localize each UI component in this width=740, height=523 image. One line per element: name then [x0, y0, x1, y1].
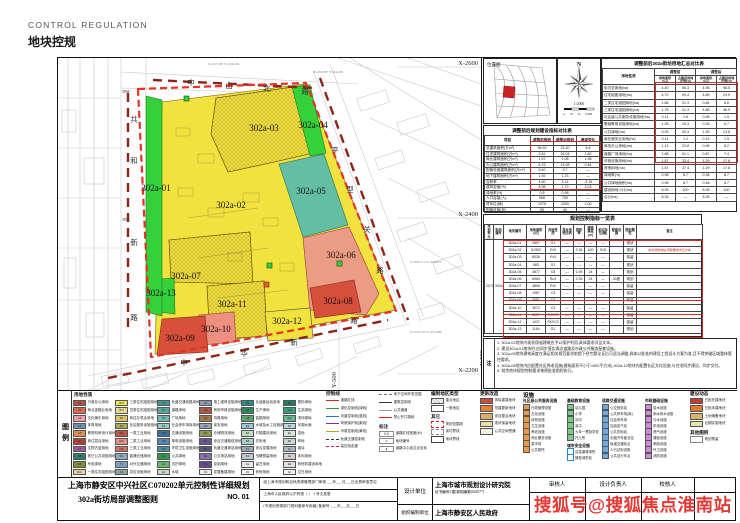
parcel-table-title: 规划控制指标一览表: [484, 215, 701, 224]
north-arrow-icon: N: [565, 62, 593, 98]
legend-facility-item: 公共厕所: [523, 447, 566, 453]
landuse-legend-item: S1道路用地: [157, 407, 199, 415]
landuse-legend-item: Wx仓储物流用地: [199, 430, 241, 438]
landuse-legend-item: Ef河湖水面: [283, 422, 325, 430]
landuse-legend-item: C8其它公共设施用地: [73, 453, 115, 461]
table-a: 项目调整前规划调整后规划增减变化总建筑面积(万m²)96.9221.406.6住…: [484, 135, 600, 213]
landuse-legend-item: D3保安用地: [199, 422, 241, 430]
svg-text:302a-04: 302a-04: [298, 120, 328, 130]
table-b-title: 调整前后302a街坊用地汇总对比表: [602, 59, 736, 68]
plan-map: 302a-01 302a-02 302a-03 302a-04 302a-05 …: [58, 58, 482, 391]
landuse-legend-item: X1控制用地: [199, 461, 241, 469]
landuse-legend-item: U1供应设施用地: [115, 468, 157, 476]
landuse-legend-item: F1综合发展用地: [241, 445, 283, 453]
landuse-legend-item: C6教育科研设计用地: [73, 430, 115, 438]
svg-text:Y-500: Y-500: [479, 350, 481, 366]
approval-line: (市规划资源部门规划备案专用章) 备案号: ___年___月___日: [260, 502, 397, 514]
scale-bar: 0 25 50 100M: [563, 108, 594, 116]
page-title-en: CONTROL REGULATION: [28, 20, 148, 30]
landuse-legend-item: Cr商住混合用地: [73, 437, 115, 445]
legend-line-item: 公共通道: [379, 406, 429, 414]
svg-text:302a-11: 302a-11: [217, 299, 246, 309]
landuse-legend-item: Ek其他非建设用地: [283, 461, 325, 469]
approval-line: 经上海市规划和自然资源管理部门审查 ___年___月___日出具审查意见: [260, 478, 397, 490]
note-line: 3. 302a-05地块建筑高度在满足相关规范要求前提下经专题论证后可适当调整,…: [497, 351, 734, 362]
plan-map-svg: 302a-01 302a-02 302a-03 302a-04 302a-05 …: [58, 58, 481, 390]
legend-education-facilities: 基础教育设施幼儿园小学初中高中九年一贯制学校托儿所城市安全设施应急避难场所微型消…: [567, 398, 600, 461]
legend-line-item: 高压线走廊: [326, 443, 378, 451]
landuse-legend-item: Rs社区服务设施用地: [115, 422, 157, 430]
legend-line-item: 禁止开口路段: [379, 414, 429, 422]
legend-chip-item: 土地储备地块: [690, 412, 736, 420]
landuse-legend-item: Rr4四类住宅组团用地: [115, 407, 157, 415]
landuse-header: 用地性质: [74, 392, 92, 398]
location-highlight: [503, 86, 515, 98]
svg-text:302a-10: 302a-10: [201, 324, 231, 334]
landuse-legend-item: U2交通设施用地: [157, 430, 199, 438]
table-parcel-indicators: 规划控制指标一览表 规划单元街坊编号地块编号用地面积(㎡)用地性质混合用地比例容…: [483, 214, 702, 337]
landuse-legend-item: G2防护绿地: [157, 461, 199, 469]
parcel-row: 302a-092581C3————保留: [485, 297, 703, 304]
legend-chip-item: 拆除重建地块: [480, 397, 521, 405]
legend-municipal-facilities: 市政基础设施给水设施雨水排水设施污水设施供电设施燃气设施通信设施邮政设施环卫设施…: [645, 398, 687, 459]
landuse-legend-item: Sb公交场站用地: [199, 453, 241, 461]
legend-facility-item: 消防设施: [645, 453, 687, 459]
table-compare-indicators: 调整前后规划建设指标对比表 项目调整前规划调整后规划增减变化总建筑面积(万m²)…: [483, 125, 601, 212]
legend-chip-item: 重点地区: [431, 397, 479, 405]
parcel-row: 302a-066964Rc3—2.3524—40座规划: [485, 276, 703, 283]
svg-text:0: 0: [563, 112, 565, 116]
legend: 图例 用地性质 C1行政办公用地C2商业金融业用地C3文化娱乐用地C4体育用地C…: [58, 391, 737, 477]
svg-text:中: 中: [180, 357, 188, 367]
svg-text:302a-13: 302a-13: [146, 288, 176, 298]
legend-chip-item: 街坊界线: [431, 428, 479, 436]
landuse-legend-item: E2水域及水工设施用地: [241, 422, 283, 430]
svg-text:新: 新: [130, 237, 138, 247]
legend-line-item: 道路红线: [326, 397, 378, 405]
svg-text:302a-09: 302a-09: [165, 333, 195, 343]
parcel-row: C0702302a302a-012897G1————现状: [485, 240, 703, 247]
svg-text:302a-03: 302a-03: [249, 123, 279, 133]
legend-misc: 地下空间开发范围建筑控制线公共通道禁止开口路段标注X-X道路红线宽度(M)▭地块…: [379, 391, 429, 453]
landuse-legend-item: U4环境卫生设施用地: [157, 445, 199, 453]
sheet-number: NO. 01: [227, 494, 249, 505]
landuse-legend-item: C4体育用地: [73, 422, 115, 430]
landuse-legend-item: W1普通仓储用地: [115, 453, 157, 461]
landuse-legend-item: E6村镇建设用地: [241, 430, 283, 438]
svg-text:25: 25: [570, 112, 574, 116]
table-b: 用地性质调整前调整后用地面积(ha)占建设用地比例(%)用地面积(ha)占建设用…: [602, 68, 737, 202]
legend-line-item: 建筑控制线: [379, 399, 429, 407]
org-unit-label: 组织编制单位: [398, 505, 433, 520]
parcel-row: 302a-121437Rr2/C3————保留: [485, 319, 703, 326]
landuse-legend-item: C7文物古迹用地: [73, 445, 115, 453]
svg-text:100M: 100M: [585, 112, 593, 116]
svg-text:路: 路: [350, 315, 358, 325]
landuse-legend-item: Gc楔形绿地: [283, 399, 325, 407]
org-unit-name: 上海市静安区人民政府: [433, 505, 529, 520]
svg-text:和: 和: [130, 156, 138, 165]
landuse-legend-item: U9其他市政设施用地: [199, 407, 241, 415]
svg-text:X=257.381 Y=459.291: X=257.381 Y=459.291: [208, 62, 240, 66]
reviewer-label: 审核人: [530, 478, 586, 492]
landuse-legend-item: Tb长途客运站用地: [241, 399, 283, 407]
scale-text: 1:2000: [574, 102, 585, 106]
parcel-row: 302a-038026Rr3————保留: [485, 254, 703, 261]
landuse-legend-item: G1公共绿地: [157, 453, 199, 461]
landuse-legend-item: C1行政办公用地: [73, 399, 115, 407]
svg-text:302a-01: 302a-01: [141, 183, 171, 193]
svg-text:N: N: [577, 62, 582, 68]
svg-text:型: 型: [346, 185, 354, 194]
svg-text:Y-500: Y-500: [331, 372, 338, 388]
parcel-row: 302a-081987C3————保留: [485, 290, 703, 297]
landuse-legend-item: Ej未利用地: [283, 453, 325, 461]
designer-label: 设计负责人: [586, 478, 642, 492]
landuse-legend-item: D1特殊用地: [199, 414, 241, 422]
landuse-legend-item: El空白用地: [283, 468, 325, 476]
landuse-legend-item: Fb其他用地: [241, 468, 283, 476]
legend-chip-item: 改建更新地块: [480, 405, 521, 413]
table-a-title: 调整前后规划建设指标对比表: [484, 126, 600, 135]
landuse-legend-item: E8农用地: [241, 437, 283, 445]
svg-text:302a-08: 302a-08: [323, 296, 353, 306]
landuse-legend-item: G5苗圃用地: [241, 414, 283, 422]
parcel-row: 302a-04583G1————现状: [485, 261, 703, 268]
svg-text:302a-06: 302a-06: [326, 250, 356, 260]
legend-annotation-item: X-X道路红线宽度(M): [379, 430, 429, 438]
parcel-row: 302a-131184G1————规划: [485, 326, 703, 333]
svg-text:X-2400: X-2400: [458, 211, 478, 218]
landuse-legend-item: S3社会停车场库用地: [157, 422, 199, 430]
landuse-legend-item: M2二类工业用地: [115, 437, 157, 445]
svg-text:X=256.733 Y=454.489: X=256.733 Y=454.489: [410, 330, 442, 334]
note-line: 5. 其余地块规划控制要求按原批准图则执行。: [497, 368, 734, 374]
svg-text:58M: 58M: [122, 217, 130, 222]
landuse-legend-item: Ei滩涂: [283, 445, 325, 453]
landuse-legend-item: Rr1一类住宅组团用地: [73, 468, 115, 476]
page-title-zh: 地块控规: [28, 33, 76, 50]
landuse-legend-item: G4生产绿地: [241, 407, 283, 415]
legend-line-item: 市政控制线(黄线): [326, 428, 378, 436]
parcel-row: 302a-074806Rr2————保留: [485, 283, 703, 290]
parcel-row: 302a-103072C3————保留: [485, 304, 703, 311]
landuse-legend-item: C2商业金融业用地: [73, 407, 115, 415]
svg-text:华: 华: [240, 348, 248, 358]
legend-chip-item: 规划预留: [690, 436, 736, 444]
landuse-legend-item: Eh林地: [283, 437, 325, 445]
landuse-legend-item: Tx综合交通枢纽用地: [199, 437, 241, 445]
legend-district-types: 编制地区类型重点地区一般地区其它规划范围线街坊界线地块界线: [431, 391, 479, 443]
legend-dynamics: 建设动态已批在建地块已批未建地块土地储备地块近期实施地块其他图例规划预留: [690, 391, 736, 443]
svg-text:山: 山: [225, 80, 233, 90]
sheet-frame: 302a-01 302a-02 302a-03 302a-04 302a-05 …: [57, 57, 736, 477]
plan-notes: 注 1. 302a-02地块内现状保留建筑应予以保护利用,具体要求详见文本。2.…: [483, 338, 737, 389]
legend-facility-item: 微型消防站: [567, 455, 600, 461]
landuse-legend-item: Gd生态绿地: [283, 407, 325, 415]
right-panel: 位置图: [482, 58, 737, 391]
legend-line-item: 河道控制线(蓝线): [326, 412, 378, 420]
drawing-subtitle: 302a街坊局部调整图则: [78, 494, 158, 505]
svg-text:302a-02: 302a-02: [216, 200, 246, 210]
landuse-legend-item: F2战略预留用地: [241, 453, 283, 461]
legend-chip-item: 规划范围线: [431, 420, 479, 428]
legend-chip-item: 地块界线: [431, 436, 479, 444]
landuse-legend-item: Fa留白用地: [241, 461, 283, 469]
approval-line: 上海市人民政府以沪府规〔 〕 1 号文批复: [260, 490, 397, 502]
landuse-legend-item: Eg湿地: [283, 430, 325, 438]
table-landuse-summary: 调整前后302a街坊用地汇总对比表 用地性质调整前调整后用地面积(ha)占建设用…: [601, 58, 737, 212]
legend-community-facilities: 社区级公共服务设施行政管理设施文化设施体育设施卫生设施养老设施商业服务设施菜市场…: [523, 398, 566, 453]
legend-facility-item: 托儿所: [567, 434, 600, 440]
svg-text:中: 中: [187, 77, 195, 87]
svg-text:北: 北: [263, 84, 271, 93]
landuse-legend-item: Sa轨道交通场站用地: [199, 445, 241, 453]
landuse-legend-item: M1一类工业用地: [115, 430, 157, 438]
svg-text:新: 新: [290, 337, 298, 347]
cert-number: 证书编号:[建]城规编第(041077): [435, 490, 527, 495]
landuse-legend-item: U3邮电设施用地: [157, 437, 199, 445]
svg-text:302a-12: 302a-12: [272, 316, 302, 326]
watermark: 搜狐号@搜狐焦点淮南站: [534, 492, 732, 517]
svg-text:302a-05: 302a-05: [296, 186, 326, 196]
svg-text:X-2200: X-2200: [458, 367, 478, 374]
design-unit-label: 设计单位: [398, 478, 433, 504]
legend-annotation-item: ●道路中心线交点坐标: [379, 445, 429, 453]
legend-side-label: 图例: [58, 391, 72, 477]
svg-text:路: 路: [301, 86, 309, 96]
landuse-legend-item: G3专用绿地: [73, 461, 115, 469]
svg-text:X=295.711 Y=458.851: X=295.711 Y=458.851: [410, 260, 442, 264]
location-map-title: 位置图: [487, 61, 501, 68]
legend-line-item: 轨道交通控制线: [326, 435, 378, 443]
landuse-legend-grid: C1行政办公用地C2商业金融业用地C3文化娱乐用地C4体育用地C6教育科研设计用…: [73, 399, 325, 477]
parcel-row: 302a-0251352Rr3—2.35100518现状本次调整地块,调整要求详…: [485, 247, 703, 254]
landuse-legend-item: Rr3三类住宅组团用地: [115, 399, 157, 407]
svg-text:路: 路: [130, 312, 138, 322]
landuse-legend-item: S2广场用地: [157, 414, 199, 422]
svg-text:X-2600: X-2600: [458, 60, 478, 67]
compass-box: N 1:2000 0 25 50 100M: [557, 58, 601, 124]
legend-chip-item: 公共空间贯通: [480, 428, 521, 436]
landuse-legend-item: Rc商住办混合用地: [115, 414, 157, 422]
svg-text:平: 平: [331, 146, 339, 155]
legend-chip-item: 一般地区: [431, 405, 479, 413]
landuse-legend-item: U5施工维修设施用地: [199, 399, 241, 407]
legend-chip-item: 已批在建地块: [690, 397, 736, 405]
landuse-legend-item: Tm轨道交通线路用地: [157, 399, 199, 407]
landuse-legend-item: Ge滨河绿地: [283, 414, 325, 422]
svg-text:共: 共: [130, 115, 138, 124]
legend-chip-item: 现状保留地块: [480, 420, 521, 428]
legend-line-item: 风貌保护线(紫线): [326, 420, 378, 428]
svg-text:路: 路: [376, 265, 384, 275]
legend-control-lines: 控制线道路红线绿化控制线(绿线)河道控制线(蓝线)风貌保护线(紫线)市政控制线(…: [326, 391, 378, 451]
landuse-legend-item: E1水域: [157, 468, 199, 476]
svg-text:X=256.387 Y=84.236: X=256.387 Y=84.236: [313, 70, 343, 74]
svg-text:58M: 58M: [122, 89, 130, 94]
drawing-title: 上海市静安区中兴社区C070202单元控制性详细规划: [60, 481, 257, 491]
svg-text:50: 50: [578, 112, 582, 116]
legend-chip-item: 综合整治地块: [480, 412, 521, 420]
landuse-legend-item: T1对外交通用地: [115, 461, 157, 469]
legend-line-item: 绿化控制线(绿线): [326, 405, 378, 413]
notes-label: 注: [484, 339, 495, 388]
svg-text:302a-07: 302a-07: [171, 271, 201, 281]
parcel-row: 302a-054877C8—1.9524—规划: [485, 268, 703, 275]
legend-facility-item: 公共自行车点: [602, 453, 643, 459]
landuse-legend-item: M3三类工业用地: [115, 445, 157, 453]
legend-transport-facilities: 道路交通设施公交首末站公共停车场(库)社会停车场加油加气站公共充电站出租汽车营业…: [602, 398, 643, 459]
landuse-legend-item: X2发展备建用地: [199, 468, 241, 476]
approval-column: 经上海市规划和自然资源管理部门审查 ___年___月___日出具审查意见上海市人…: [260, 478, 398, 520]
legend-renewal: 更新改造拆除重建地块改建更新地块综合整治地块现状保留地块公共空间贯通: [480, 391, 521, 435]
planning-sheet: CONTROL REGULATION 地块控规: [0, 0, 740, 523]
legend-annotation-item: ▭地块编号: [379, 437, 429, 445]
landuse-legend-item: C3文化娱乐用地: [73, 414, 115, 422]
location-map: 位置图: [483, 58, 557, 124]
checker-label: 校核人: [642, 478, 695, 492]
legend-line-item: 地下空间开发范围: [379, 391, 429, 399]
parcel-row: 302a-116007Rr2/C3————保留: [485, 311, 703, 318]
svg-text:关: 关: [363, 224, 371, 234]
legend-chip-item: 近期实施地块: [690, 420, 736, 428]
design-unit-name: 上海市城市规划设计研究院: [435, 480, 527, 489]
parcel-table: 规划单元街坊编号地块编号用地面积(㎡)用地性质混合用地比例容积率建筑高度(m)机…: [484, 224, 703, 334]
legend-chip-item: 已批未建地块: [690, 405, 736, 413]
